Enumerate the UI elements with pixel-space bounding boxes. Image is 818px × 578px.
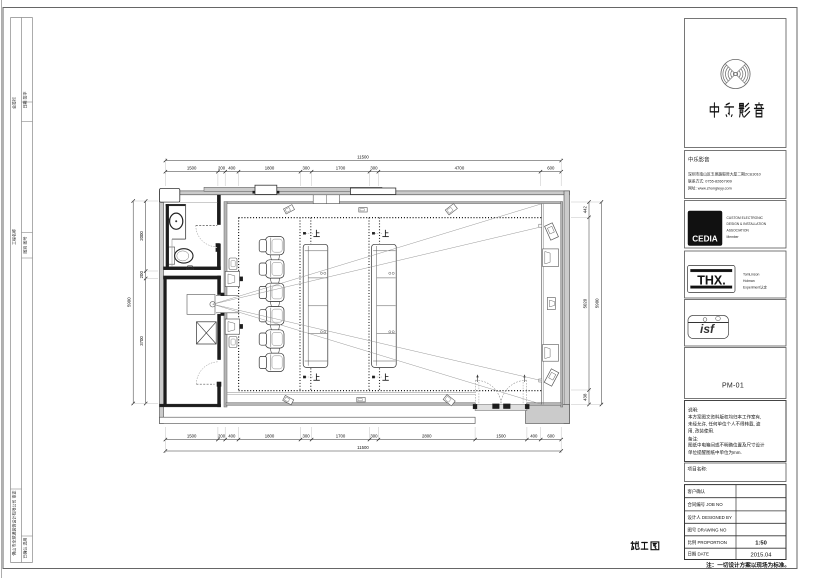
svg-text:1500: 1500 xyxy=(187,165,197,170)
svg-text:会签栏: 会签栏 xyxy=(11,97,17,109)
svg-text:400: 400 xyxy=(530,433,538,438)
svg-text:说明:: 说明: xyxy=(688,407,698,414)
svg-text:400: 400 xyxy=(228,165,236,170)
svg-text:THX.: THX. xyxy=(697,273,725,287)
svg-text:备注:: 备注: xyxy=(688,435,698,442)
svg-text:图别 图号: 图别 图号 xyxy=(22,236,28,253)
svg-text:600: 600 xyxy=(547,433,555,438)
svg-text:438: 438 xyxy=(582,393,587,401)
svg-text:CEDIA: CEDIA xyxy=(692,235,718,244)
svg-text:200: 200 xyxy=(218,165,226,170)
svg-text:PM-01: PM-01 xyxy=(722,383,744,390)
svg-text:1500: 1500 xyxy=(187,433,197,438)
svg-text:比例 PROPORTION: 比例 PROPORTION xyxy=(688,539,727,546)
svg-text:300: 300 xyxy=(370,433,378,438)
svg-text:2800: 2800 xyxy=(422,433,432,438)
svg-text:图纸中电箱间或不明确位置及尺寸设计: 图纸中电箱间或不明确位置及尺寸设计 xyxy=(688,441,765,448)
svg-text:Member: Member xyxy=(727,235,740,239)
svg-text:项目名称:: 项目名称: xyxy=(688,466,708,473)
svg-text:3700: 3700 xyxy=(139,336,144,346)
svg-text:深圳市南山区玉泉路毅哲大厦二期2C&3010: 深圳市南山区玉泉路毅哲大厦二期2C&3010 xyxy=(688,172,761,177)
svg-text:日期 签字: 日期 签字 xyxy=(22,91,28,108)
svg-text:1:50: 1:50 xyxy=(755,541,767,547)
svg-text:注：一切设计方案以现场为标准。: 注：一切设计方案以现场为标准。 xyxy=(706,561,790,569)
svg-text:300: 300 xyxy=(302,433,310,438)
svg-text:200: 200 xyxy=(139,271,144,279)
svg-text:11500: 11500 xyxy=(357,445,369,450)
svg-text:600: 600 xyxy=(547,165,555,170)
svg-text:客户确认: 客户确认 xyxy=(688,488,706,495)
svg-text:单位提醒图纸中单位为mm.: 单位提醒图纸中单位为mm. xyxy=(688,449,742,456)
svg-text:300: 300 xyxy=(302,165,310,170)
svg-text:佛山市全球通装饰设计有限公司 审定: 佛山市全球通装饰设计有限公司 审定 xyxy=(11,490,17,555)
svg-text:11500: 11500 xyxy=(357,154,369,159)
svg-text:联系方式: 0755-82667909: 联系方式: 0755-82667909 xyxy=(688,179,732,184)
svg-text:ASSOCIATION: ASSOCIATION xyxy=(727,229,750,233)
svg-text:4700: 4700 xyxy=(455,165,465,170)
svg-text:1800: 1800 xyxy=(265,433,275,438)
svg-text:1800: 1800 xyxy=(265,165,275,170)
svg-text:本方案图文资料版权均归本工作室有,: 本方案图文资料版权均归本工作室有, xyxy=(688,414,761,421)
svg-text:已确认 选用: 已确认 选用 xyxy=(22,537,28,558)
svg-text:DESIGN & INSTALLATION: DESIGN & INSTALLATION xyxy=(727,222,767,226)
svg-text:2015.04: 2015.04 xyxy=(751,553,773,559)
svg-text:2000: 2000 xyxy=(139,231,144,241)
svg-text:5900: 5900 xyxy=(127,297,132,307)
svg-text:isf: isf xyxy=(700,322,715,336)
svg-text:TomLinson: TomLinson xyxy=(743,273,760,277)
svg-text:442: 442 xyxy=(582,205,587,213)
svg-text:设计人 DESIGNED BY: 设计人 DESIGNED BY xyxy=(688,514,732,521)
svg-text:1500: 1500 xyxy=(496,433,506,438)
svg-text:5020: 5020 xyxy=(582,298,587,308)
svg-text:1700: 1700 xyxy=(336,433,346,438)
svg-text:1700: 1700 xyxy=(336,165,346,170)
svg-text:400: 400 xyxy=(228,433,236,438)
svg-text:合同编号 JOB NO: 合同编号 JOB NO xyxy=(688,501,724,508)
svg-text:网址: www.zhongleyy.com: 网址: www.zhongleyy.com xyxy=(688,185,732,190)
svg-text:CUSTOM ELECTRONIC: CUSTOM ELECTRONIC xyxy=(727,216,764,220)
svg-text:5900: 5900 xyxy=(595,298,600,308)
svg-text:中乐影音: 中乐影音 xyxy=(688,156,710,164)
svg-text:Holman: Holman xyxy=(743,279,755,283)
svg-text:200: 200 xyxy=(218,433,226,438)
svg-text:工程名称: 工程名称 xyxy=(11,229,17,245)
svg-text:300: 300 xyxy=(370,165,378,170)
svg-text:用, 改装使用.: 用, 改装使用. xyxy=(688,428,714,435)
svg-text:未经允许, 任何单位个人不得转载, 盗: 未经允许, 任何单位个人不得转载, 盗 xyxy=(688,421,761,428)
svg-text:Experiment认定: Experiment认定 xyxy=(743,285,768,290)
